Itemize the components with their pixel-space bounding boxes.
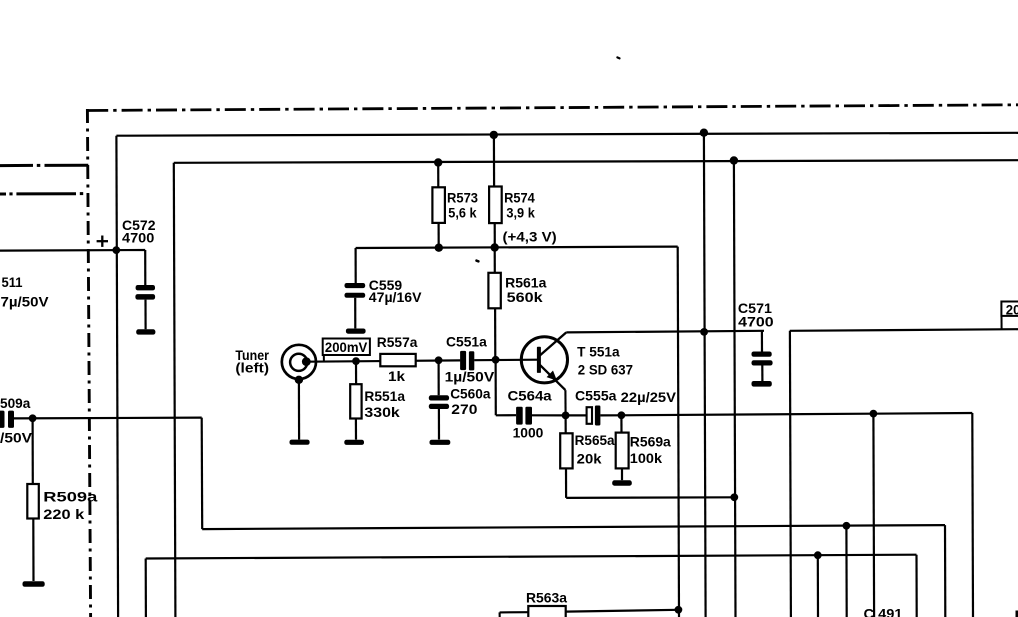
svg-text:(+4,3 V): (+4,3 V) [503, 229, 557, 245]
svg-text:R563a: R563a [526, 590, 567, 606]
svg-text:200mV: 200mV [325, 340, 367, 355]
svg-text:C 491: C 491 [864, 606, 903, 617]
svg-text:/50V: /50V [0, 431, 33, 446]
svg-text:3,9 k: 3,9 k [506, 204, 535, 220]
svg-text:R573: R573 [447, 189, 478, 205]
svg-text:(left): (left) [235, 361, 269, 376]
svg-text:4700: 4700 [122, 229, 155, 245]
svg-text:4700: 4700 [738, 314, 774, 330]
svg-text:C560a: C560a [450, 385, 490, 401]
svg-text:R565a: R565a [575, 432, 615, 448]
svg-text:R569a: R569a [630, 433, 671, 449]
svg-text:R509a: R509a [43, 489, 97, 505]
svg-text:T 551a: T 551a [577, 343, 620, 359]
svg-text:509a: 509a [0, 396, 31, 411]
svg-text:200mV: 200mV [1006, 302, 1018, 317]
svg-text:270: 270 [451, 401, 477, 417]
svg-text:5,6 k: 5,6 k [448, 204, 476, 220]
svg-text:1µ/50V: 1µ/50V [445, 369, 495, 385]
svg-text:330k: 330k [364, 404, 400, 420]
svg-text:7µ/50V: 7µ/50V [1, 294, 50, 309]
svg-text:20k: 20k [577, 451, 602, 467]
svg-text:47µ/16V: 47µ/16V [369, 289, 422, 305]
svg-text:100k: 100k [630, 450, 662, 466]
svg-text:R557a: R557a [377, 334, 418, 350]
svg-text:560k: 560k [507, 289, 543, 305]
svg-text:511: 511 [2, 275, 23, 290]
svg-text:R574: R574 [504, 189, 535, 205]
svg-text:1000: 1000 [513, 425, 544, 441]
svg-text:C564a: C564a [508, 388, 552, 404]
svg-text:2 SD 637: 2 SD 637 [578, 361, 633, 377]
svg-text:C551a: C551a [446, 334, 487, 350]
svg-text:220 k: 220 k [43, 506, 84, 522]
svg-text:1k: 1k [388, 368, 405, 384]
svg-text:22µ/25V: 22µ/25V [621, 389, 677, 405]
svg-text:C555a: C555a [575, 388, 617, 404]
svg-text:R551a: R551a [364, 388, 405, 404]
